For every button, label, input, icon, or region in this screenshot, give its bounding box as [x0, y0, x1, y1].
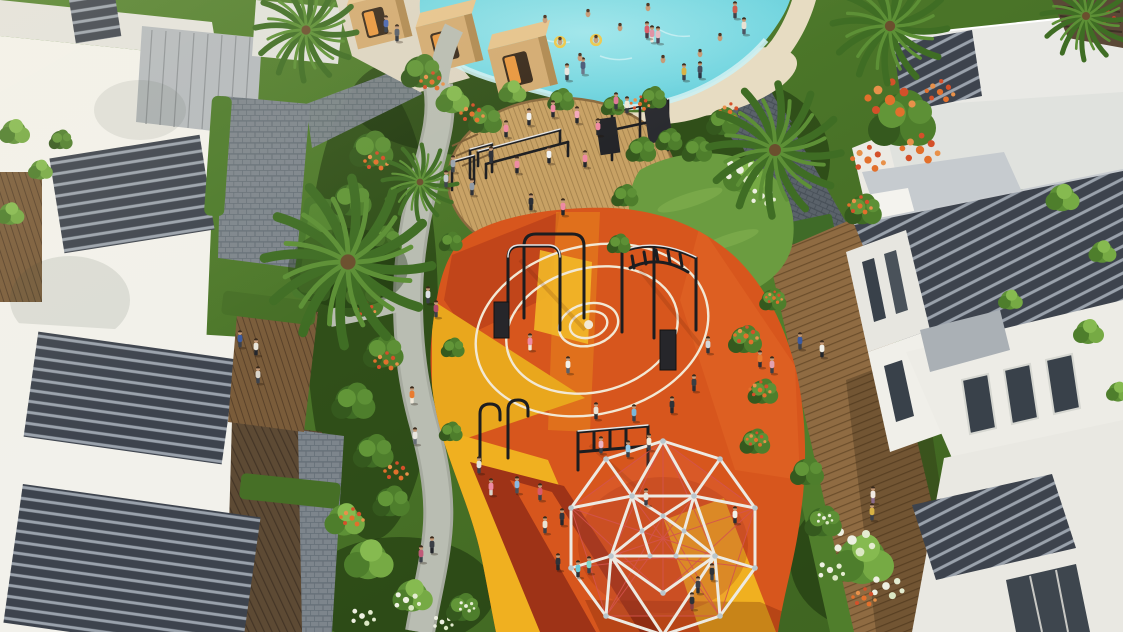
render-viewport [0, 0, 1123, 632]
sunlight-glare-overlay [0, 0, 1123, 632]
scene-svg [0, 0, 1123, 632]
